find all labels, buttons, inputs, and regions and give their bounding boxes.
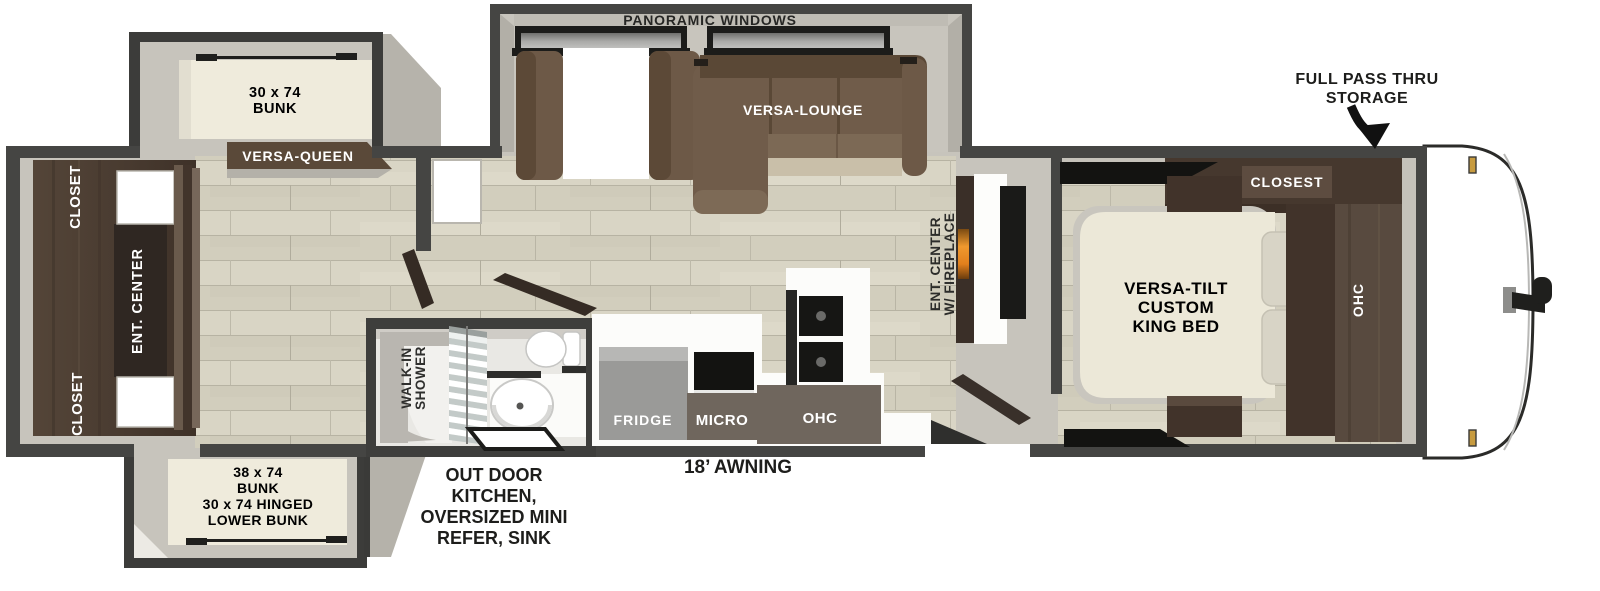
svg-text:OUT DOOR: OUT DOOR [446, 465, 543, 485]
svg-text:VERSA-LOUNGE: VERSA-LOUNGE [743, 102, 863, 118]
svg-text:VERSA-TILT: VERSA-TILT [1124, 279, 1228, 298]
svg-text:CLOSEST: CLOSEST [1250, 174, 1323, 190]
svg-text:W/ FIREPLACE: W/ FIREPLACE [942, 213, 957, 316]
svg-text:30 x 74: 30 x 74 [249, 85, 301, 101]
svg-text:STORAGE: STORAGE [1326, 90, 1408, 107]
svg-text:CLOSET: CLOSET [69, 372, 86, 436]
svg-text:LOWER BUNK: LOWER BUNK [208, 512, 308, 528]
svg-text:VERSA-QUEEN: VERSA-QUEEN [242, 148, 353, 164]
svg-text:30 x 74 HINGED: 30 x 74 HINGED [203, 496, 314, 512]
svg-text:FULL PASS THRU: FULL PASS THRU [1295, 71, 1438, 88]
svg-text:OVERSIZED MINI: OVERSIZED MINI [420, 507, 567, 527]
svg-text:BUNK: BUNK [237, 480, 279, 496]
svg-text:CUSTOM: CUSTOM [1138, 298, 1214, 317]
svg-text:FRIDGE: FRIDGE [614, 412, 673, 428]
svg-text:CLOSET: CLOSET [67, 165, 84, 229]
svg-text:BUNK: BUNK [253, 101, 297, 117]
svg-text:SHOWER: SHOWER [413, 346, 428, 410]
svg-text:WALK-IN: WALK-IN [399, 347, 414, 408]
svg-text:OHC: OHC [1350, 283, 1366, 317]
svg-text:KITCHEN,: KITCHEN, [452, 486, 537, 506]
svg-text:ENT. CENTER: ENT. CENTER [130, 248, 146, 354]
svg-text:KING BED: KING BED [1132, 317, 1219, 336]
svg-text:MICRO: MICRO [696, 412, 749, 429]
svg-text:REFER, SINK: REFER, SINK [437, 528, 551, 548]
svg-text:ENT. CENTER: ENT. CENTER [928, 217, 943, 311]
svg-text:PANORAMIC WINDOWS: PANORAMIC WINDOWS [623, 12, 797, 28]
svg-text:18’ AWNING: 18’ AWNING [684, 457, 792, 478]
svg-text:38 x 74: 38 x 74 [233, 464, 283, 480]
svg-text:OHC: OHC [803, 410, 838, 427]
